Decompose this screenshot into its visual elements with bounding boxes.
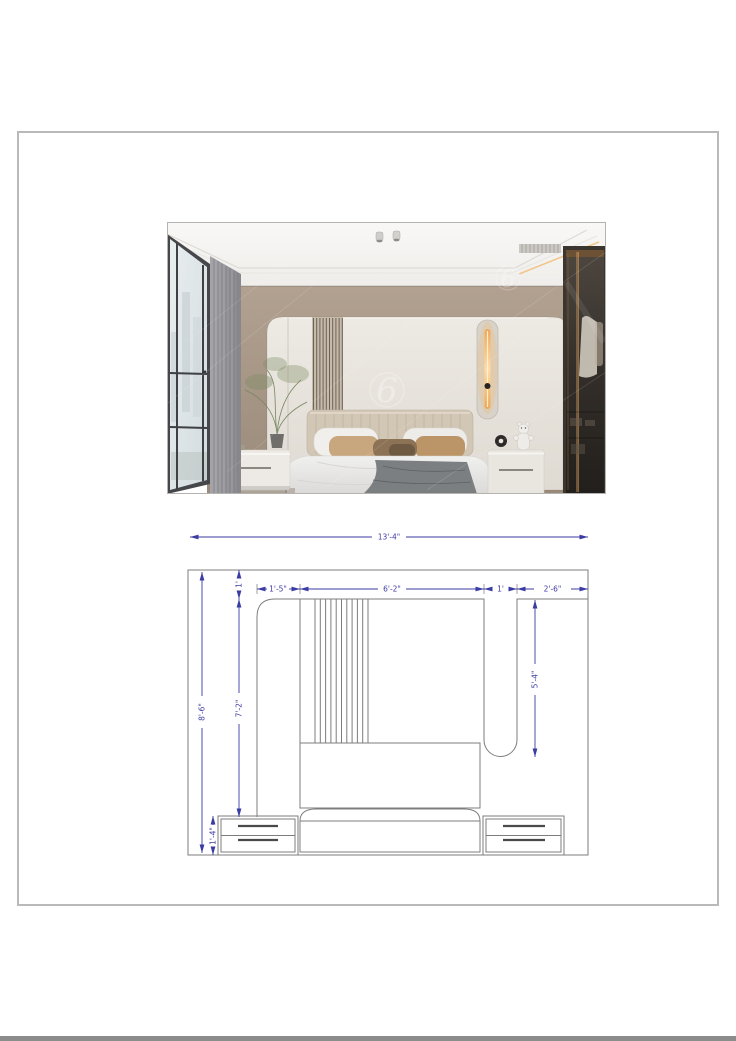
wall-outline — [188, 570, 588, 855]
window — [167, 234, 210, 494]
dim-recess-height: 5'-4" — [531, 671, 540, 689]
watermark-logo-center: 6 — [376, 371, 398, 411]
bedroom-render-image: 6 6 — [167, 222, 606, 494]
fluted-slat-panel — [312, 317, 343, 414]
dim-left-section: 1'-5" — [269, 585, 287, 594]
dim-center-section: 6'-2" — [383, 585, 401, 594]
dim-nightstand-height: 1'-4" — [209, 827, 218, 845]
led-ball-accent — [485, 383, 491, 389]
dim-total-height: 8'-6" — [198, 703, 207, 721]
footer-bar — [0, 1036, 736, 1041]
watermark-logo-top: 6 — [500, 265, 515, 293]
glass-wardrobe — [563, 246, 606, 494]
ceiling-vent — [519, 244, 561, 253]
dim-panel-height: 7'-2" — [235, 700, 244, 718]
led-light-recess — [477, 320, 498, 419]
dim-total-width: 13'-4" — [378, 533, 401, 542]
elevation-drawing: 13'-4" 1'-5" 6'-2" 1' 2'-6" 8'-6" 1' 7'-… — [182, 528, 602, 878]
dim-right-section: 2'-6" — [544, 585, 562, 594]
dim-ceiling-band: 1' — [235, 581, 244, 588]
throw-blanket — [363, 460, 477, 494]
dim-recess-width: 1' — [497, 585, 504, 594]
bed — [285, 456, 489, 494]
curtain — [210, 256, 241, 494]
bedroom-render-svg: 6 6 — [167, 222, 606, 494]
elevation-drawing-svg: 13'-4" 1'-5" 6'-2" 1' 2'-6" 8'-6" 1' 7'-… — [182, 528, 602, 878]
nightstand-right — [488, 450, 544, 494]
document-page: 6 6 — [0, 0, 736, 1041]
